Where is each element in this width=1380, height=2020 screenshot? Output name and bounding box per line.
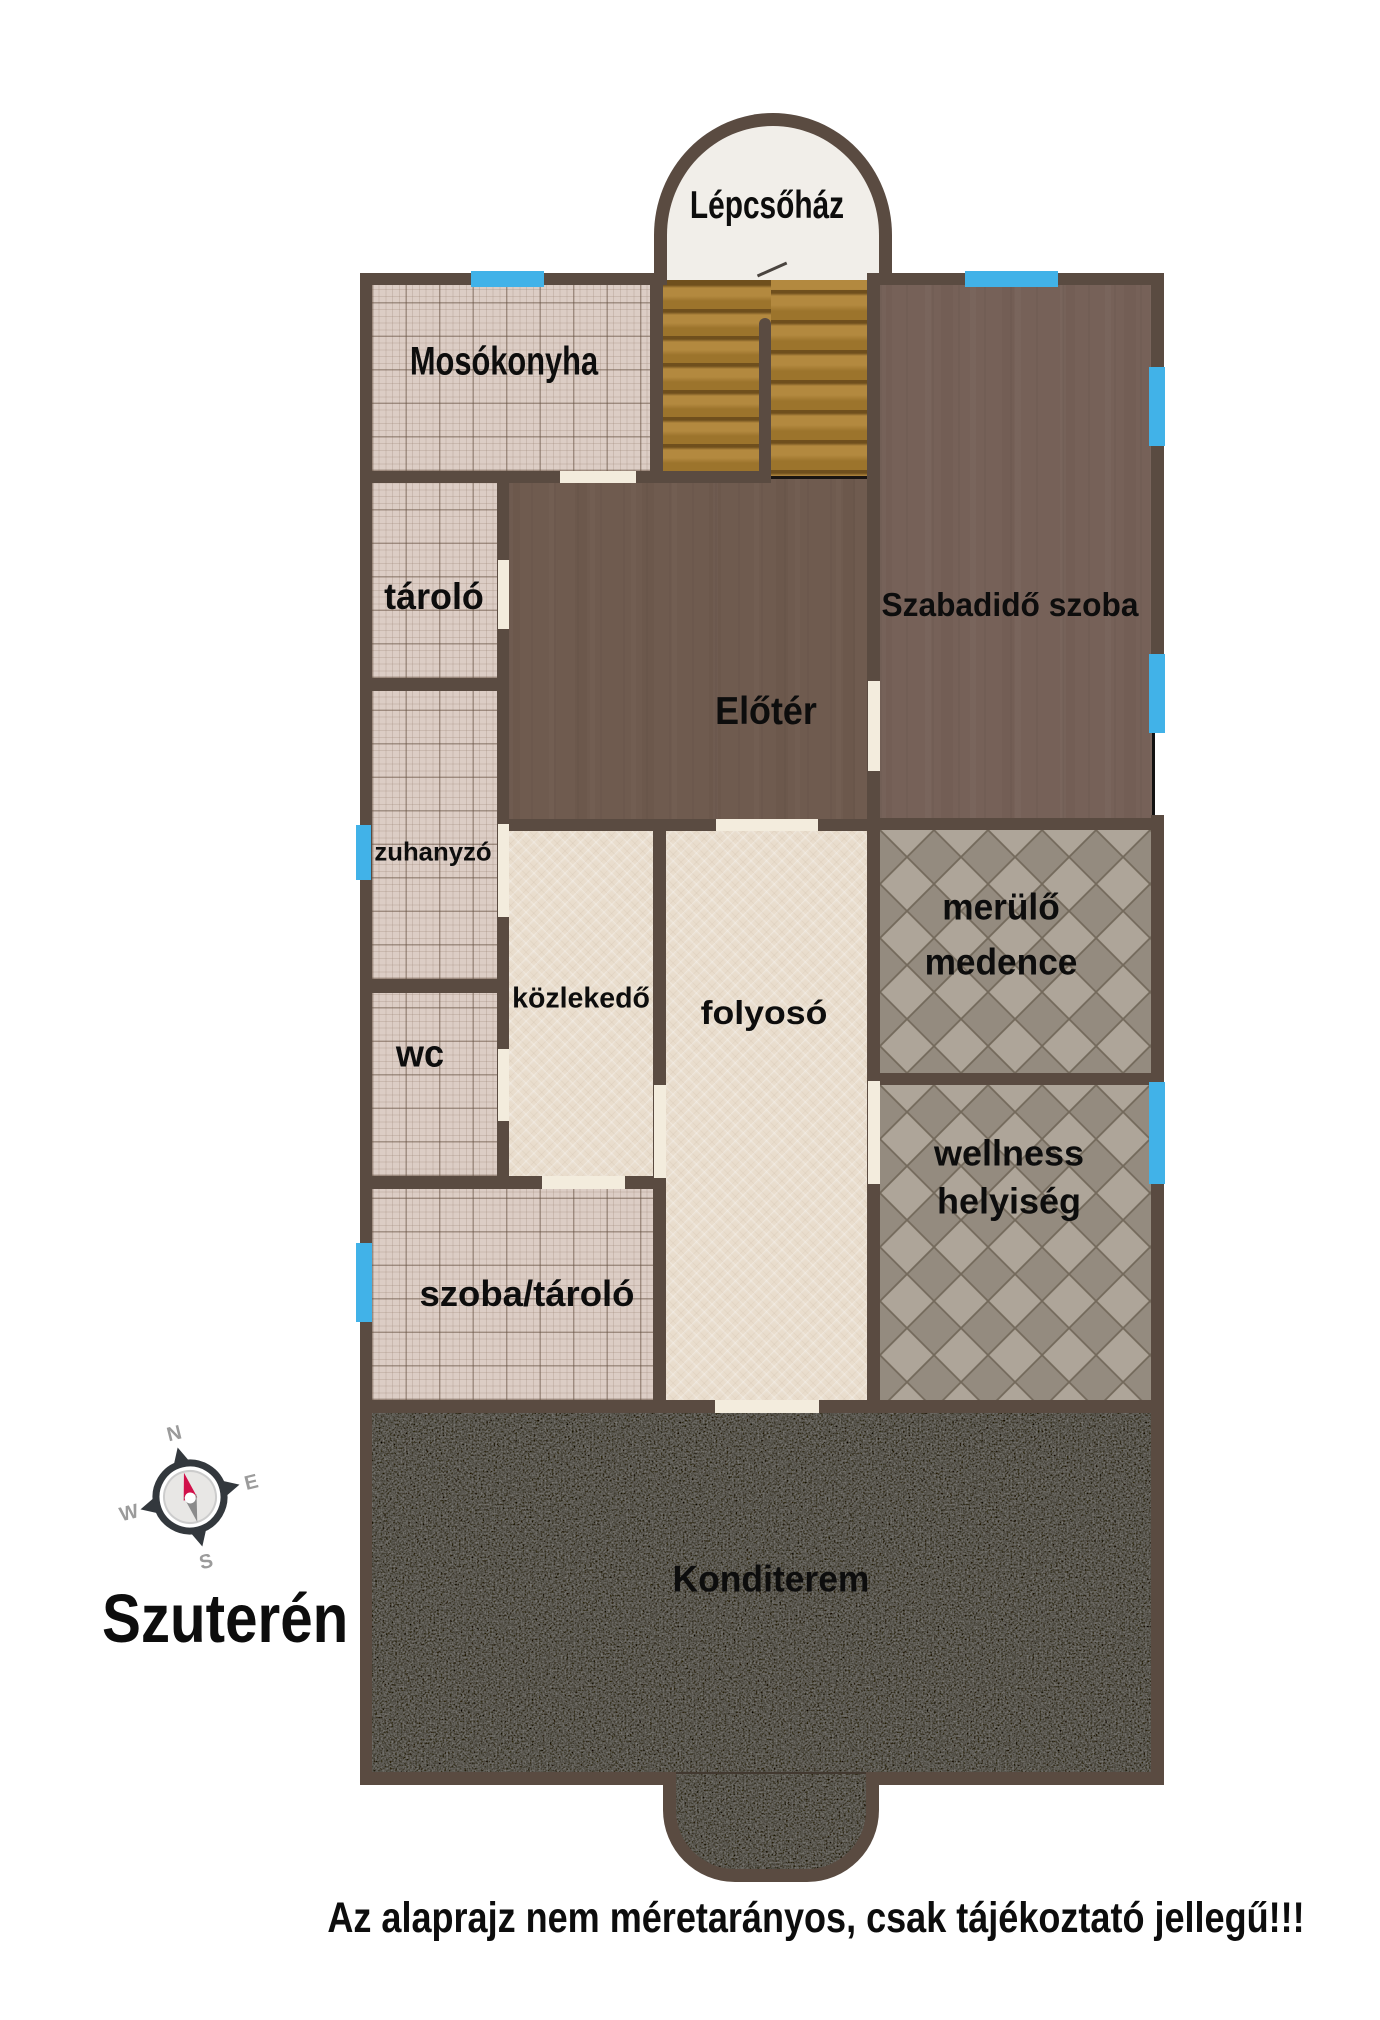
svg-text:S: S <box>197 1550 215 1575</box>
svg-text:E: E <box>242 1470 260 1495</box>
svg-text:W: W <box>117 1500 141 1526</box>
svg-text:N: N <box>165 1422 184 1447</box>
